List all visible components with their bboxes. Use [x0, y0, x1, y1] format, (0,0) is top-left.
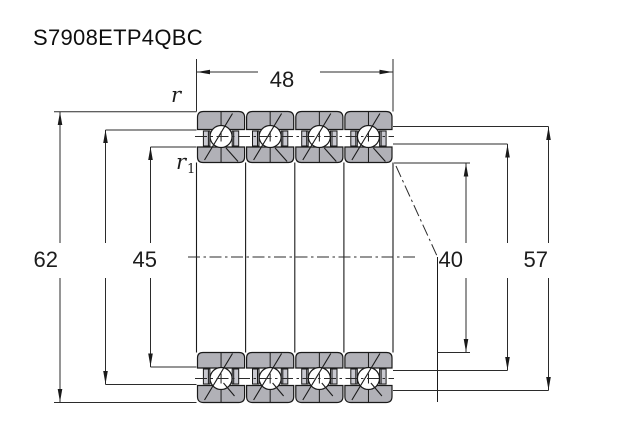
chamfer-r1-base: r: [176, 150, 186, 174]
dim-bore-label: 40: [419, 248, 463, 272]
dim-left-shoulder-label: 45: [113, 248, 157, 272]
part-number-title: S7908ETP4QBC: [33, 25, 203, 51]
bearing-drawing-page: S7908ETP4QBC 48 62 45 40 57 r r1: [0, 0, 640, 440]
chamfer-r-label: r: [171, 83, 181, 107]
dim-width-label: 48: [260, 68, 304, 92]
dim-outer-diameter-label: 62: [14, 248, 58, 272]
bearing-drawing: [0, 0, 640, 440]
chamfer-r1-subscript: 1: [187, 162, 195, 177]
extension-lines: [54, 59, 549, 403]
chamfer-r1-label: r1: [176, 150, 195, 177]
dim-right-shoulder-label: 57: [504, 248, 548, 272]
